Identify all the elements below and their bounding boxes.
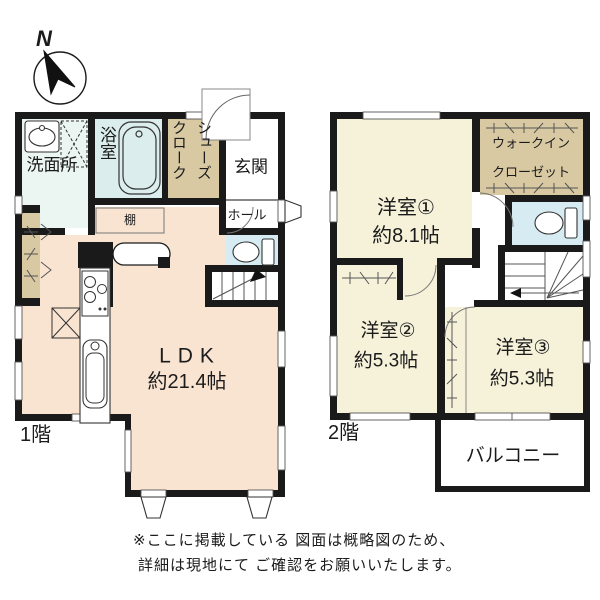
wic-label-line2: クローゼット: [492, 166, 570, 179]
stairs2-down-arrow: [510, 288, 521, 298]
hall-label: ホール: [227, 209, 266, 222]
washroom-label: 洗面所: [27, 157, 78, 174]
room2-name-label: 洋室②: [360, 322, 415, 341]
shelf-label: 棚: [124, 214, 136, 226]
room3-name-label: 洋室③: [495, 339, 550, 358]
floorplan-canvas: N 洗面所 浴室 シューズ クローク 玄関 ホール 棚 LDK 約21.4帖 1…: [0, 0, 600, 600]
bathroom-label: 浴室: [98, 126, 115, 160]
room3-size-label: 約5.3帖: [490, 370, 554, 389]
ldk-size-label: 約21.4帖: [148, 372, 227, 392]
compass-north-label: N: [36, 28, 52, 50]
compass-icon: [34, 51, 86, 104]
wic-floor: [480, 119, 583, 195]
disclaimer-line1: ※ここに掲載している 図面は概略図のため、: [133, 533, 455, 548]
room2-size-label: 約5.3帖: [354, 352, 418, 371]
shoe-closet-label-right: シューズ: [196, 120, 211, 180]
floorplan-drawing: [0, 0, 600, 600]
room1-size-label: 約8.1帖: [372, 226, 440, 246]
pantry-floor: [22, 213, 40, 298]
entrance-label: 玄関: [234, 159, 268, 176]
wic-label-line1: ウォークイン: [492, 137, 570, 150]
shoe-closet-label-left: クローク: [171, 120, 186, 180]
ldk-name-label: LDK: [159, 346, 221, 367]
ldk-floor-lower: [131, 414, 278, 490]
balcony-label: バルコニー: [466, 447, 561, 466]
ldk-floor-strip: [95, 207, 219, 235]
room1-name-label: 洋室①: [377, 198, 435, 218]
disclaimer-line2: 詳細は現地にて ご確認をお願いいたします。: [138, 558, 462, 573]
washbasin-icon: [25, 121, 59, 152]
floor2-label: 2階: [328, 423, 359, 443]
stairs2: [505, 252, 583, 300]
floor1-plan: [15, 89, 301, 518]
floor1-label: 1階: [20, 425, 51, 445]
